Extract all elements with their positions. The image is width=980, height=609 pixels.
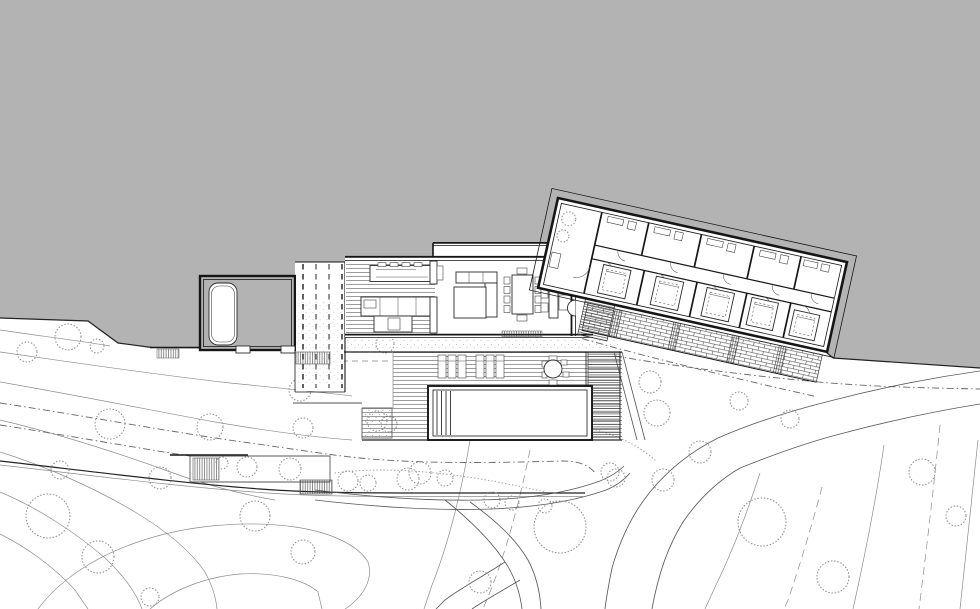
- car: [209, 283, 237, 345]
- rug: [454, 287, 486, 318]
- planter: [362, 408, 392, 438]
- pergola-courtyard: [295, 262, 345, 392]
- garage-door-pier: [236, 346, 250, 353]
- divider-wall: [430, 297, 437, 333]
- site-plan-page: [0, 0, 980, 609]
- divider-wall: [430, 261, 437, 284]
- door-track: [502, 331, 542, 337]
- terrace-steps: [300, 480, 332, 494]
- planting-strip: [345, 338, 620, 351]
- courtyard-steps: [296, 352, 330, 364]
- garage-door-pier: [281, 346, 295, 353]
- swimming-pool: [428, 386, 592, 440]
- site-plan-canvas: [0, 0, 980, 609]
- kitchen: [346, 261, 435, 334]
- sofa: [454, 272, 497, 318]
- kitchen-island: [370, 266, 434, 282]
